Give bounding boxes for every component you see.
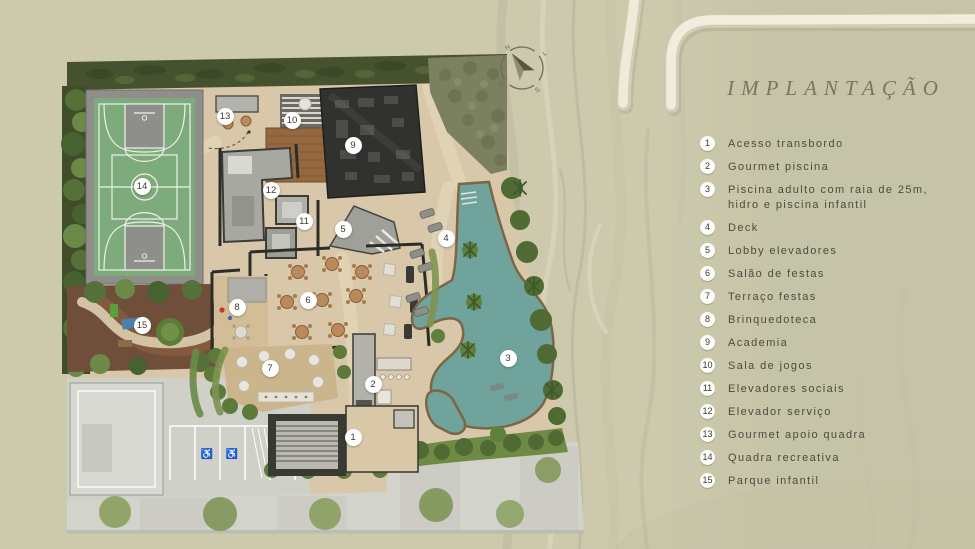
legend-item: 11 Elevadores sociais xyxy=(700,381,968,397)
legend-item: 12 Elevador serviço xyxy=(700,404,968,420)
legend-item-number: 7 xyxy=(700,289,715,304)
legend-item-label: Lobby elevadores xyxy=(728,243,837,259)
legend-item: 2 Gourmet piscina xyxy=(700,159,968,175)
legend-item-label: Sala de jogos xyxy=(728,358,813,374)
legend-item-label: Gourmet apoio quadra xyxy=(728,427,866,443)
legend-item-label: Salão de festas xyxy=(728,266,825,282)
legend-item-number: 4 xyxy=(700,220,715,235)
legend-item: 5 Lobby elevadores xyxy=(700,243,968,259)
legend-item-number: 9 xyxy=(700,335,715,350)
legend-item: 7 Terraço festas xyxy=(700,289,968,305)
legend-item-number: 5 xyxy=(700,243,715,258)
legend-item-label: Quadra recreativa xyxy=(728,450,840,466)
legend-item: 9 Academia xyxy=(700,335,968,351)
legend-item: 15 Parque infantil xyxy=(700,473,968,489)
legend-item-number: 13 xyxy=(700,427,715,442)
site-plan-illustration: ♿ ♿ xyxy=(0,0,690,549)
legend-item: 13 Gourmet apoio quadra xyxy=(700,427,968,443)
legend-item: 14 Quadra recreativa xyxy=(700,450,968,466)
legend-item-label: Academia xyxy=(728,335,788,351)
compass-letter-l: L xyxy=(541,50,548,58)
page-title: IMPLANTAÇÃO xyxy=(690,76,975,101)
legend-item-label: Gourmet piscina xyxy=(728,159,829,175)
legend-item-label: Deck xyxy=(728,220,759,236)
legend-item-number: 3 xyxy=(700,182,715,197)
compass-letter-s: S xyxy=(534,86,542,95)
accessible-parking-icon: ♿ xyxy=(226,447,238,460)
legend-list: 1 Acesso transbordo 2 Gourmet piscina 3 … xyxy=(700,136,968,496)
legend-item: 6 Salão de festas xyxy=(700,266,968,282)
legend-item: 1 Acesso transbordo xyxy=(700,136,968,152)
legend-item: 10 Sala de jogos xyxy=(700,358,968,374)
legend-item: 8 Brinquedoteca xyxy=(700,312,968,328)
legend-item-label: Acesso transbordo xyxy=(728,136,844,152)
legend-item-number: 10 xyxy=(700,358,715,373)
legend-item-number: 12 xyxy=(700,404,715,419)
kids-playroom xyxy=(214,276,268,348)
accessible-parking-icon: ♿ xyxy=(201,447,213,460)
legend-item-label: Piscina adulto com raia de 25m, hidro e … xyxy=(728,182,928,213)
legend-item-number: 15 xyxy=(700,473,715,488)
legend-item-number: 11 xyxy=(700,381,715,396)
gym-building xyxy=(320,85,425,198)
legend-item-number: 2 xyxy=(700,159,715,174)
legend-item-label: Parque infantil xyxy=(728,473,819,489)
legend-item-label: Elevadores sociais xyxy=(728,381,845,397)
legend-item-label: Terraço festas xyxy=(728,289,817,305)
legend-item-label: Elevador serviço xyxy=(728,404,832,420)
legend-item-number: 6 xyxy=(700,266,715,281)
legend-item-number: 8 xyxy=(700,312,715,327)
transfer-access xyxy=(268,406,418,476)
legend-item: 4 Deck xyxy=(700,220,968,236)
legend-item-number: 14 xyxy=(700,450,715,465)
legend-item: 3 Piscina adulto com raia de 25m, hidro … xyxy=(700,182,968,213)
legend-item-label: Brinquedoteca xyxy=(728,312,817,328)
basketball-court xyxy=(86,90,203,284)
legend-panel: IMPLANTAÇÃO 1 Acesso transbordo 2 Gourme… xyxy=(690,0,975,549)
implantacao-page: ♿ ♿ xyxy=(0,0,975,549)
legend-item-number: 1 xyxy=(700,136,715,151)
